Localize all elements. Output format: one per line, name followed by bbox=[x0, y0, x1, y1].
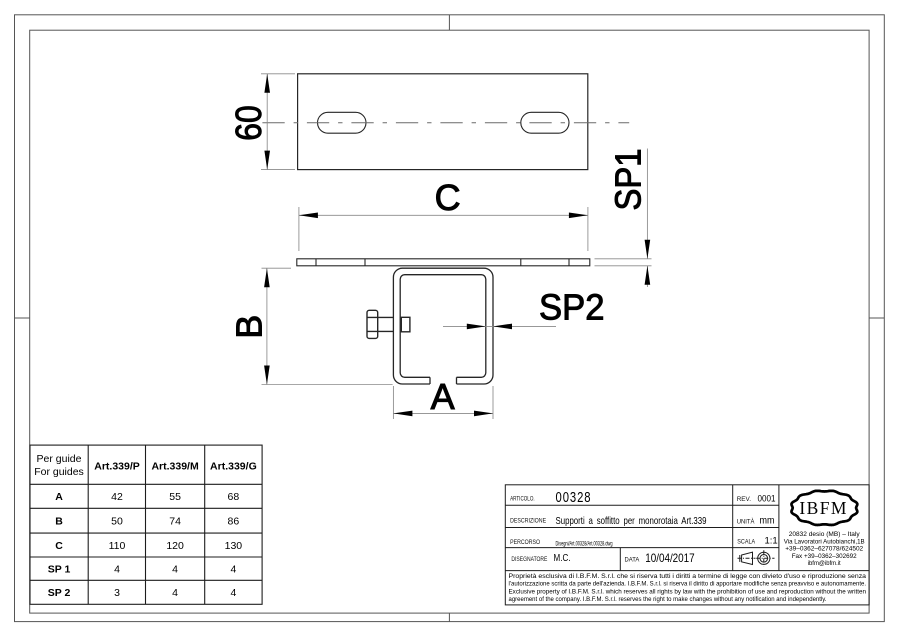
svg-text:Art.339/M: Art.339/M bbox=[151, 461, 199, 473]
svg-text:REV.: REV. bbox=[737, 496, 751, 503]
svg-text:B: B bbox=[55, 516, 63, 528]
svg-text:120: 120 bbox=[166, 540, 184, 552]
svg-text:Disegni/Art.00328/Art.00328.dw: Disegni/Art.00328/Art.00328.dwg bbox=[556, 540, 613, 547]
svg-text:M.C.: M.C. bbox=[554, 552, 571, 564]
svg-text:UNITÀ: UNITÀ bbox=[737, 516, 755, 525]
svg-text:1:1: 1:1 bbox=[765, 536, 778, 547]
svg-text:B: B bbox=[229, 315, 270, 339]
svg-text:DATA: DATA bbox=[625, 557, 640, 564]
svg-text:4: 4 bbox=[230, 564, 236, 576]
svg-text:Fax +39–0362–302692: Fax +39–0362–302692 bbox=[792, 553, 857, 560]
svg-text:55: 55 bbox=[169, 491, 181, 503]
svg-text:IBFM: IBFM bbox=[799, 498, 849, 518]
svg-text:SP2: SP2 bbox=[539, 287, 605, 328]
svg-text:130: 130 bbox=[225, 540, 243, 552]
svg-text:110: 110 bbox=[109, 540, 126, 552]
svg-text:ibfm@ibfm.it: ibfm@ibfm.it bbox=[808, 560, 841, 567]
svg-text:SP1: SP1 bbox=[607, 149, 648, 211]
svg-text:4: 4 bbox=[172, 587, 178, 599]
svg-text:20832 desio (MB) – Italy: 20832 desio (MB) – Italy bbox=[789, 531, 861, 538]
svg-text:4: 4 bbox=[114, 564, 120, 576]
svg-text:DESCRIZIONE: DESCRIZIONE bbox=[510, 518, 547, 525]
svg-text:+39–0362–627078/624502: +39–0362–627078/624502 bbox=[785, 546, 863, 553]
svg-text:10/04/2017: 10/04/2017 bbox=[645, 551, 695, 565]
svg-text:86: 86 bbox=[228, 516, 240, 528]
svg-text:SP 2: SP 2 bbox=[48, 587, 71, 599]
svg-text:Art.339/G: Art.339/G bbox=[210, 461, 257, 473]
svg-text:l'autorizzazione scritta da pa: l'autorizzazione scritta da parte dell'a… bbox=[509, 581, 867, 588]
svg-text:4: 4 bbox=[172, 564, 178, 576]
svg-text:C: C bbox=[435, 177, 461, 218]
svg-text:Exclusive property of I.B.F.M.: Exclusive property of I.B.F.M. S.r.l. wh… bbox=[509, 588, 867, 595]
svg-text:Supporti a soffitto per monor: Supporti a soffitto per monorotaia Art.3… bbox=[556, 515, 707, 527]
svg-text:Via Lavoratori Autobianchi,1B: Via Lavoratori Autobianchi,1B bbox=[784, 538, 866, 545]
svg-text:mm: mm bbox=[760, 516, 775, 527]
svg-text:Art.339/P: Art.339/P bbox=[94, 461, 140, 473]
svg-text:0001: 0001 bbox=[758, 494, 776, 505]
svg-text:A: A bbox=[431, 376, 455, 417]
svg-text:SCALA: SCALA bbox=[737, 538, 755, 545]
svg-text:50: 50 bbox=[111, 516, 123, 528]
svg-text:60: 60 bbox=[228, 105, 269, 141]
svg-text:ARTICOLO.: ARTICOLO. bbox=[510, 495, 535, 502]
svg-text:3: 3 bbox=[114, 587, 120, 599]
svg-text:74: 74 bbox=[169, 516, 181, 528]
svg-text:68: 68 bbox=[228, 491, 240, 503]
svg-text:agreement of the company. I.B.: agreement of the company. I.B.F.M. S.r.l… bbox=[509, 596, 827, 603]
svg-text:Proprietà esclusiva di I.B.F.M: Proprietà esclusiva di I.B.F.M. S.r.l. c… bbox=[509, 573, 867, 580]
svg-text:Per guide: Per guide bbox=[37, 453, 82, 465]
svg-text:DISEGNATORE: DISEGNATORE bbox=[511, 556, 548, 563]
svg-text:42: 42 bbox=[111, 491, 123, 503]
svg-text:00328: 00328 bbox=[556, 490, 592, 506]
svg-text:For guides: For guides bbox=[34, 466, 84, 478]
svg-text:A: A bbox=[55, 491, 63, 503]
svg-text:C: C bbox=[55, 540, 63, 552]
svg-text:PERCORSO: PERCORSO bbox=[510, 539, 540, 546]
svg-text:SP 1: SP 1 bbox=[48, 564, 71, 576]
svg-text:4: 4 bbox=[230, 587, 236, 599]
